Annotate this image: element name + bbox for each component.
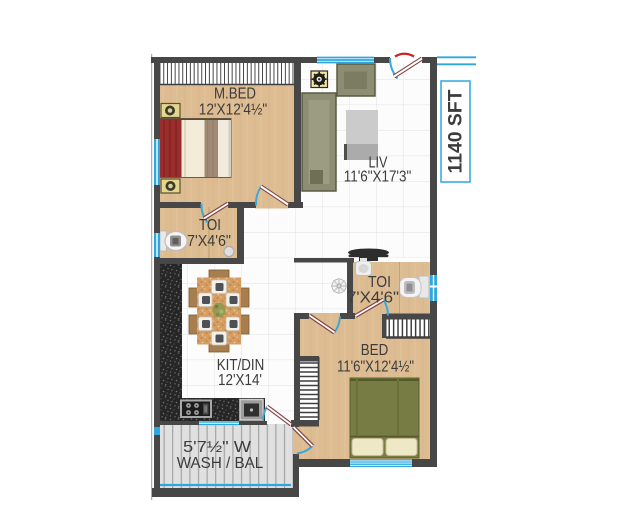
svg-text:5'7½" W: 5'7½" W xyxy=(183,439,251,456)
svg-text:12'X12'4½": 12'X12'4½" xyxy=(199,102,268,119)
svg-text:TOI: TOI xyxy=(199,217,221,234)
svg-text:12'X14': 12'X14' xyxy=(218,372,262,389)
svg-text:TOI: TOI xyxy=(368,274,391,291)
svg-text:11'6"X12'4½": 11'6"X12'4½" xyxy=(337,359,414,376)
svg-text:M.BED: M.BED xyxy=(214,86,256,103)
svg-text:11'6"X17'3": 11'6"X17'3" xyxy=(344,169,412,186)
svg-text:7'X4'6": 7'X4'6" xyxy=(347,290,399,307)
svg-text:WASH / BAL: WASH / BAL xyxy=(177,455,264,472)
svg-text:1140 SFT: 1140 SFT xyxy=(445,89,467,173)
svg-text:7'X4'6": 7'X4'6" xyxy=(187,233,231,250)
svg-text:BED: BED xyxy=(361,342,389,359)
